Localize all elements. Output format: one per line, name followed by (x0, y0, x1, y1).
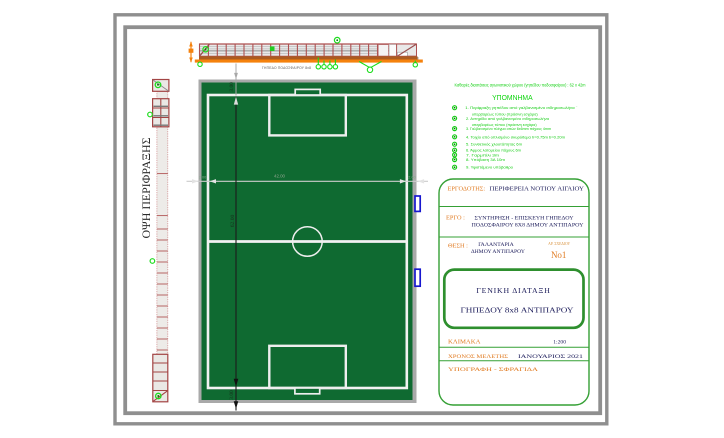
svg-text:5. Συνθετικός χλοοτάπητας 6m: 5. Συνθετικός χλοοτάπητας 6m (466, 142, 523, 147)
svg-text:9. Υφιστάμενο υπόβαθρο: 9. Υφιστάμενο υπόβαθρο (466, 165, 514, 170)
svg-text:2.00: 2.00 (199, 176, 206, 180)
svg-text:62.00: 62.00 (230, 214, 236, 227)
svg-text:ΠΟΔΟΣΦΑΙΡΟΥ 8Χ8 ΔΗΜΟΥ ΑΝΤΙΠΑΡΟ: ΠΟΔΟΣΦΑΙΡΟΥ 8Χ8 ΔΗΜΟΥ ΑΝΤΙΠΑΡΟΥ (472, 223, 584, 229)
svg-text:3. Γαλβανισμένο πλέγμα οπών 6: 3. Γαλβανισμένο πλέγμα οπών 6x6mm πάχους… (466, 126, 552, 131)
svg-text:ΥΠΟΜΝΗΜΑ: ΥΠΟΜΝΗΜΑ (492, 93, 533, 102)
svg-text:Καθαρές διαστάσεις αγωνιστικού: Καθαρές διαστάσεις αγωνιστικού χώρου (γη… (455, 82, 587, 87)
svg-text:42.00: 42.00 (274, 173, 286, 178)
svg-text:3.00: 3.00 (229, 390, 235, 400)
svg-text:8. Υπόβαση 3Α 10m: 8. Υπόβαση 3Α 10m (466, 157, 506, 162)
svg-text:ΓΗΠΕΔΟΥ 8x8 ΑΝΤΙΠΑΡΟΥ: ΓΗΠΕΔΟΥ 8x8 ΑΝΤΙΠΑΡΟΥ (461, 305, 574, 314)
svg-text:ΚΛΙΜΑΚΑ: ΚΛΙΜΑΚΑ (448, 340, 481, 346)
svg-text:3.00: 3.00 (229, 82, 235, 92)
svg-text:ΑΡ. ΣΧΕΔΙΟΥ: ΑΡ. ΣΧΕΔΙΟΥ (548, 242, 570, 246)
svg-text:ΔΗΜΟΥ ΑΝΤΙΠΑΡΟΥ: ΔΗΜΟΥ ΑΝΤΙΠΑΡΟΥ (471, 250, 525, 255)
svg-text:ΠΕΡΙΦΕΡΕΙΑ ΝΟΤΙΟΥ ΑΙΓΑΙΟΥ: ΠΕΡΙΦΕΡΕΙΑ ΝΟΤΙΟΥ ΑΙΓΑΙΟΥ (490, 186, 585, 193)
svg-text:ΓΗΠΕΔΟ ΠΟΔΟΣΦΑΙΡΟΥ 8x8: ΓΗΠΕΔΟ ΠΟΔΟΣΦΑΙΡΟΥ 8x8 (262, 66, 311, 70)
svg-text:2. Αντηρίδα από γαλβανισμένο σ: 2. Αντηρίδα από γαλβανισμένο σιδηροσωλήν… (466, 116, 550, 121)
svg-text:2.00: 2.00 (408, 176, 415, 180)
svg-text:ΓΕΝΙΚΗ ΔΙΑΤΑΞΗ: ΓΕΝΙΚΗ ΔΙΑΤΑΞΗ (476, 286, 550, 295)
svg-text:ΙΑΝΟΥΑΡΙΟΣ 2021: ΙΑΝΟΥΑΡΙΟΣ 2021 (518, 354, 583, 360)
svg-text:ΣΥΝΤΗΡΗΣΗ - ΕΠΙΣΚΕΥΗ ΓΗΠΕΔΟΥ: ΣΥΝΤΗΡΗΣΗ - ΕΠΙΣΚΕΥΗ ΓΗΠΕΔΟΥ (475, 215, 574, 221)
svg-text:ΥΠΟΓΡΑΦΗ - ΣΦΡΑΓΙΔΑ: ΥΠΟΓΡΑΦΗ - ΣΦΡΑΓΙΔΑ (448, 367, 538, 373)
svg-text:ΧΡΟΝΟΣ ΜΕΛΕΤΗΣ: ΧΡΟΝΟΣ ΜΕΛΕΤΗΣ (448, 354, 508, 360)
svg-text:4. Τοιχίο από οπλισμένο σκυρόδ: 4. Τοιχίο από οπλισμένο σκυρόδεμα h=0.75… (466, 134, 566, 139)
svg-text:ΓΑΛΑΝΤΑΡΙΑ: ΓΑΛΑΝΤΑΡΙΑ (478, 243, 514, 248)
svg-text:No1: No1 (551, 250, 567, 260)
svg-text:ΟΨΗ ΠΕΡΙΦΡΑΞΗΣ: ΟΨΗ ΠΕΡΙΦΡΑΞΗΣ (139, 137, 153, 238)
svg-text:1. Περίφραξη γηπέδου από γαλβα: 1. Περίφραξη γηπέδου από γαλβανισμένο σι… (465, 105, 578, 110)
svg-text:ΘΕΣΗ :: ΘΕΣΗ : (448, 243, 468, 250)
svg-text:ΕΡΓΟ :: ΕΡΓΟ : (446, 215, 465, 222)
svg-text:ΕΡΓΟΔΟΤΗΣ:: ΕΡΓΟΔΟΤΗΣ: (448, 186, 486, 193)
svg-text:1:200: 1:200 (553, 339, 566, 345)
